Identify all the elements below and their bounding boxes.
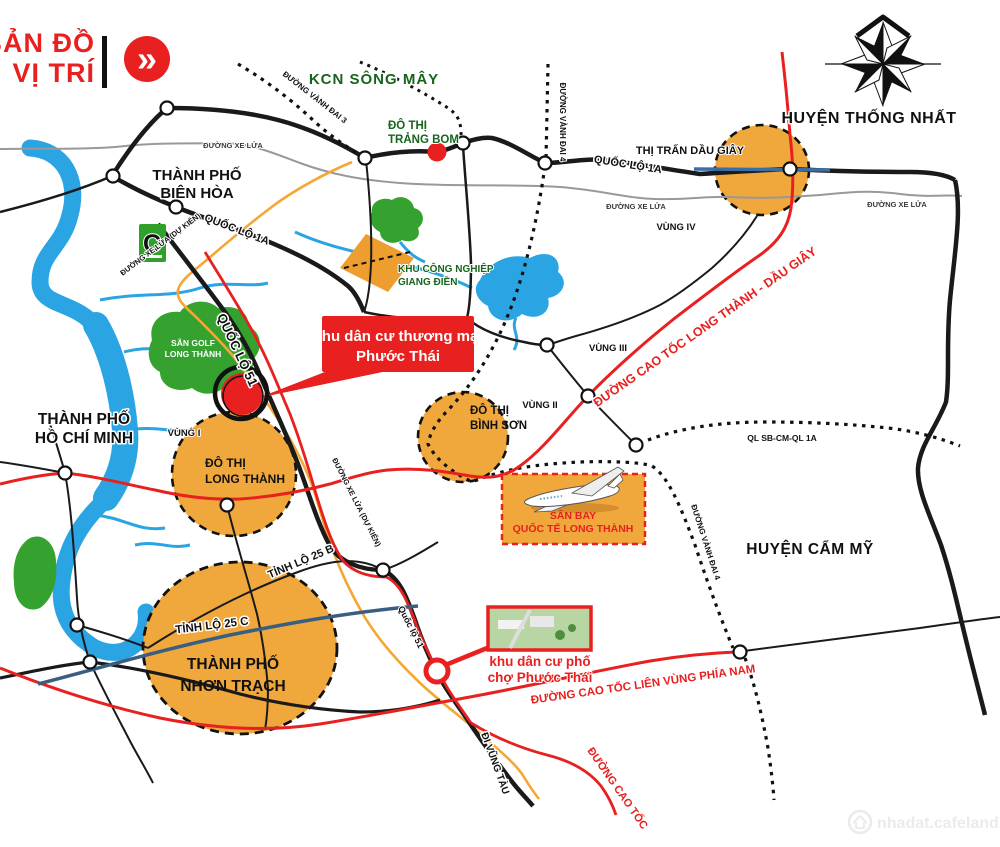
label-san-golf-line1: SÂN GOLF xyxy=(171,337,215,348)
junction xyxy=(377,564,390,577)
junction xyxy=(630,439,643,452)
junction xyxy=(59,467,72,480)
junction xyxy=(539,157,552,170)
pho-cho-trees-1 xyxy=(555,630,565,640)
project-callout-line2: Phước Thái xyxy=(356,348,440,365)
label-bien-hoa-line2: BIÊN HÒA xyxy=(160,184,234,202)
label-giang-dien-line1: KHU CÔNG NGHIỆP xyxy=(398,262,494,275)
marker-pho-cho-ring xyxy=(426,660,448,682)
label-trang-bom-line1: ĐÔ THỊ xyxy=(388,119,427,132)
pho-cho-label-line1: khu dân cư phố xyxy=(489,654,590,669)
pho-cho-buildings-2 xyxy=(530,616,554,627)
location-map: C khu dân cư thương mại Phước Thái SÂN B… xyxy=(0,0,1000,847)
label-giang-dien-line2: GIANG ĐIỀN xyxy=(398,275,457,288)
label-vung-1: VÙNG I xyxy=(168,427,201,439)
project-callout-line1: khu dân cư thương mại xyxy=(313,328,482,345)
label-thi-tran-dau-giay: THỊ TRẤN DẦU GIÂY xyxy=(636,144,745,157)
label-trang-bom-line2: TRẢNG BOM xyxy=(388,133,459,146)
chevron-icon[interactable]: » xyxy=(137,38,157,79)
junction xyxy=(107,170,120,183)
junction xyxy=(84,656,97,669)
chevron-button[interactable]: » xyxy=(124,36,170,82)
page-title-line2: VỊ TRÍ xyxy=(12,57,95,88)
label-hcm-line1: THÀNH PHỐ xyxy=(38,410,130,428)
airport-label-line1: SÂN BAY xyxy=(550,509,596,522)
label-xe-lua-3: ĐƯỜNG XE LỬA xyxy=(867,200,927,209)
junction xyxy=(161,102,174,115)
junction xyxy=(784,163,797,176)
project-callout: khu dân cư thương mại Phước Thái xyxy=(313,316,482,372)
title-divider xyxy=(102,36,107,88)
label-hcm-line2: HỒ CHÍ MINH xyxy=(35,429,133,447)
pho-cho-label-line2: chợ Phước Thái xyxy=(488,670,593,685)
label-do-thi-long-thanh-line2: LONG THÀNH xyxy=(205,471,285,486)
junction xyxy=(734,646,747,659)
label-vung-3: VÙNG III xyxy=(589,342,627,354)
watermark-text: nhadat.cafeland.vn xyxy=(877,815,1000,832)
junction xyxy=(541,339,554,352)
page-title-line1: BẢN ĐỒ xyxy=(0,26,95,58)
label-vanh-dai-4-north: ĐƯỜNG VÀNH ĐAI 4 xyxy=(558,83,567,162)
label-ql-sb: QL SB-CM-QL 1A xyxy=(747,433,817,443)
label-binh-son-line2: BÌNH SƠN xyxy=(470,419,527,432)
label-do-thi-long-thanh-line1: ĐÔ THỊ xyxy=(205,455,246,470)
label-huyen-cam-my: HUYỆN CẨM MỸ xyxy=(746,540,874,558)
junction xyxy=(359,152,372,165)
pho-cho-callout: khu dân cư phố chợ Phước Thái xyxy=(488,607,593,685)
label-san-golf-line2: LONG THÀNH xyxy=(165,349,222,359)
pho-cho-trees-2 xyxy=(568,624,576,632)
junction xyxy=(71,619,84,632)
airport-callout: SÂN BAY QUỐC TẾ LONG THÀNH xyxy=(502,467,645,544)
label-huyen-thong-nhat: HUYỆN THỐNG NHẤT xyxy=(781,107,956,127)
junction xyxy=(170,201,183,214)
label-xe-lua-2: ĐƯỜNG XE LỬA xyxy=(606,202,666,211)
label-nhon-trach-line2: NHƠN TRẠCH xyxy=(180,678,285,695)
airport-label-line2: QUỐC TẾ LONG THÀNH xyxy=(513,521,634,535)
label-vung-4: VÙNG IV xyxy=(656,221,696,233)
label-kcn-song-may: KCN SÔNG MÂY xyxy=(309,70,439,88)
label-vung-2: VÙNG II xyxy=(522,399,557,411)
label-xe-lua-1: ĐƯỜNG XE LỬA xyxy=(203,141,263,150)
junction xyxy=(221,499,234,512)
route-dau-giay-blue xyxy=(694,169,830,170)
label-binh-son-line1: ĐÔ THỊ xyxy=(470,404,509,417)
label-bien-hoa-line1: THÀNH PHỐ xyxy=(152,166,241,184)
label-nhon-trach-line1: THÀNH PHỐ xyxy=(187,655,279,673)
